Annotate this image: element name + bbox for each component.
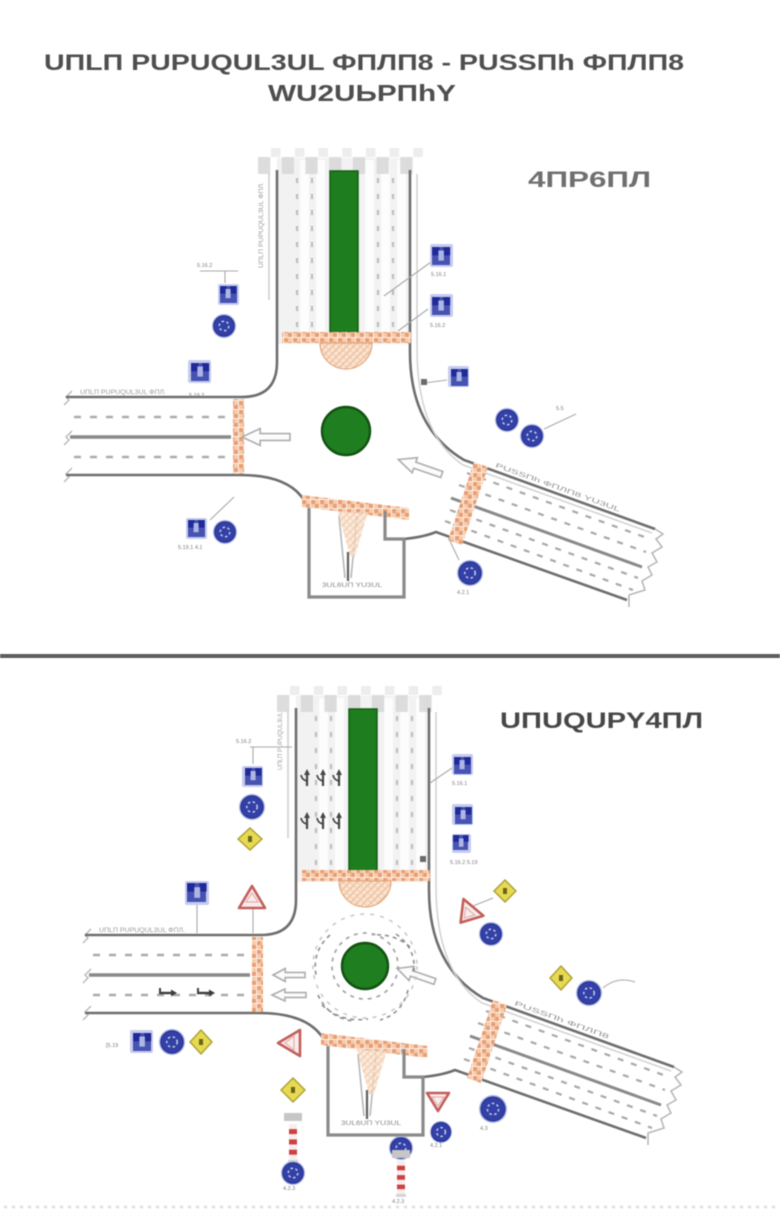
svg-text:4.2.3: 4.2.3 xyxy=(392,1199,404,1205)
svg-text:4.2.3: 4.2.3 xyxy=(283,1186,295,1192)
svg-text:4.2.1: 4.2.1 xyxy=(430,1143,442,1149)
svg-text:3UL6UП YU3UL: 3UL6UП YU3UL xyxy=(322,583,383,589)
svg-text:4ПР6ПЛ: 4ПР6ПЛ xyxy=(528,167,651,192)
svg-text:5.16.2 5.19: 5.16.2 5.19 xyxy=(450,860,478,866)
svg-text:4.3: 4.3 xyxy=(480,1126,488,1132)
svg-text:UПLП РUРUQUL3UL: UПLП РUРUQUL3UL xyxy=(278,711,284,770)
svg-text:5.16.1: 5.16.1 xyxy=(452,781,467,787)
svg-text:5.16.2: 5.16.2 xyxy=(430,323,445,329)
svg-text:5.16.1: 5.16.1 xyxy=(431,272,446,278)
svg-text:3UL6UП YU3UL: 3UL6UП YU3UL xyxy=(341,1121,402,1127)
svg-text:5.16.2: 5.16.2 xyxy=(236,739,251,745)
svg-text:5.19.1 4.1: 5.19.1 4.1 xyxy=(178,545,202,551)
svg-text:UПLП РUРUQUL3UL ФПЛ.: UПLП РUРUQUL3UL ФПЛ. xyxy=(259,182,265,268)
svg-text:5.5: 5.5 xyxy=(556,406,564,412)
svg-text:UПUQUРY4ПЛ: UПUQUРY4ПЛ xyxy=(500,708,703,733)
svg-text:[5.19: [5.19 xyxy=(106,1043,118,1049)
svg-text:5.19.2: 5.19.2 xyxy=(189,393,204,399)
svg-text:UПLП РUРUQUL3UL ФПЛ.: UПLП РUРUQUL3UL ФПЛ. xyxy=(99,928,185,934)
svg-text:4.2.1: 4.2.1 xyxy=(457,590,469,596)
svg-text:5.16.2: 5.16.2 xyxy=(197,263,212,269)
svg-text:WU2UЬРПhY: WU2UЬРПhY xyxy=(268,80,456,106)
svg-text:UПLП РUРUQUL3UL ФПЛ.: UПLП РUРUQUL3UL ФПЛ. xyxy=(80,390,166,396)
svg-text:UПLП РUРUQUL3UL ФПЛП8 - РUSSПh: UПLП РUРUQUL3UL ФПЛП8 - РUSSПh ФПЛП8 xyxy=(44,50,684,75)
